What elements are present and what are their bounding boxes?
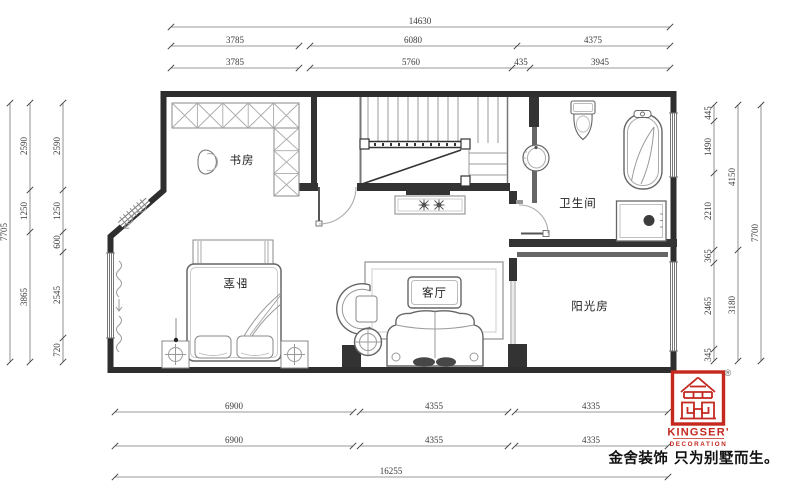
dim-label: 2590 — [52, 137, 62, 156]
dimension-lines: 1463037856080437537855760435394569004355… — [0, 16, 764, 480]
stair-break-line — [362, 150, 461, 184]
dim-label: 4355 — [425, 435, 444, 445]
dim-label: 16255 — [380, 466, 403, 476]
bed-bench — [193, 240, 273, 264]
nightstand-right — [281, 341, 308, 368]
dim-label: 4150 — [727, 168, 737, 187]
dim-label: 445 — [703, 106, 713, 120]
dim-label: 4335 — [582, 401, 601, 411]
dim-label: 4375 — [584, 35, 603, 45]
dim-label: 3945 — [591, 57, 610, 67]
company-tagline: 金舍装饰 只为别墅而生。 — [607, 449, 779, 467]
bathtub — [624, 111, 662, 190]
sink — [523, 145, 549, 171]
dimension-group: 378557604353945 — [168, 57, 673, 71]
logo-sub-text: DECORATION — [670, 441, 728, 448]
dim-label: 345 — [703, 348, 713, 362]
console-table — [395, 191, 465, 214]
dim-label: 4355 — [425, 401, 444, 411]
dimension-group: 7705 — [0, 100, 13, 365]
dim-label: 365 — [703, 249, 713, 263]
study-chair — [198, 150, 218, 174]
sunroom-sliding-door — [511, 281, 515, 344]
dim-label: 14630 — [409, 16, 432, 26]
dim-label: 435 — [514, 57, 528, 67]
dim-label: 2210 — [703, 202, 713, 221]
nightstand-left — [162, 341, 189, 368]
dim-label: 1250 — [52, 202, 62, 221]
dimension-group: 378560804375 — [168, 35, 673, 49]
armchair — [337, 284, 377, 335]
dim-label: 5760 — [402, 57, 421, 67]
dim-label: 2545 — [52, 286, 62, 305]
dimension-group: 445149022103652465345 — [703, 102, 717, 364]
dim-label: 6900 — [225, 435, 244, 445]
floor-lamp — [174, 318, 178, 342]
dim-label: 3865 — [19, 288, 29, 307]
dimension-group: 41503180 — [727, 102, 741, 364]
dim-label: 2590 — [19, 137, 29, 156]
dim-label: 1250 — [19, 202, 29, 221]
dimension-group: 259012506002545720 — [52, 100, 66, 365]
study-wardrobe-side — [274, 128, 299, 196]
side-table — [355, 329, 382, 356]
dim-label: 4335 — [582, 435, 601, 445]
dim-label: 2465 — [703, 297, 713, 316]
kingser-logo: ® KINGSER' DECORATION — [667, 368, 731, 448]
dim-label: 1490 — [703, 138, 713, 157]
floor-plan-page: 书房 卧室 — [0, 0, 800, 490]
room-label-living: 客厅 — [422, 286, 447, 300]
room-label-sunroom: 阳光房 — [571, 299, 609, 313]
registered-mark: ® — [725, 368, 732, 378]
dim-label: 7705 — [0, 223, 9, 242]
floor-plan-drawing: 书房 卧室 — [0, 0, 800, 490]
pillow — [195, 336, 231, 358]
room-label-bedroom: 卧室 — [223, 276, 248, 290]
dim-label: 6080 — [404, 35, 423, 45]
dim-label: 720 — [52, 343, 62, 357]
dimension-group: 690043554335 — [112, 401, 671, 415]
dimension-group: 14630 — [168, 16, 673, 30]
dim-label: 6900 — [225, 401, 244, 411]
dim-label: 3785 — [226, 57, 245, 67]
dimension-group: 16255 — [112, 466, 671, 480]
dim-label: 3180 — [727, 296, 737, 315]
logo-brand-text: KINGSER' — [667, 427, 729, 439]
pillow — [237, 336, 273, 358]
dimension-group: 259012503865 — [19, 100, 33, 365]
dim-label: 600 — [52, 235, 62, 249]
staircase — [360, 97, 507, 186]
dimension-group: 7700 — [750, 102, 764, 364]
bathroom-door — [516, 200, 549, 237]
room-label-bathroom: 卫生间 — [559, 196, 597, 210]
dim-label: 7700 — [750, 224, 760, 243]
dimension-group: 690043554335 — [112, 435, 671, 449]
toilet — [571, 101, 595, 140]
study-wardrobe-top — [172, 103, 299, 128]
room-label-study: 书房 — [230, 154, 255, 167]
dim-label: 3785 — [226, 35, 245, 45]
shower — [617, 201, 667, 241]
study-door — [316, 187, 356, 226]
sofa — [387, 311, 483, 367]
